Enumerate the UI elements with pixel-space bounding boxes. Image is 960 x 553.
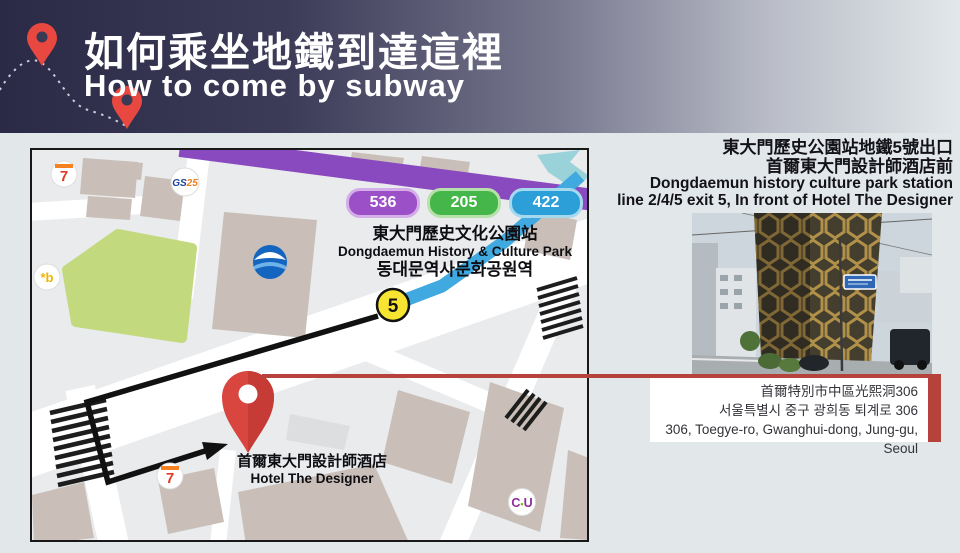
infographic-page: 如何乘坐地鐵到達這裡 How to come by subway 東大門歷史公園…: [0, 0, 960, 553]
address-accent-bar: [928, 374, 941, 442]
directions-line-zh-1: 東大門歷史公園站地鐵5號出口: [575, 138, 953, 157]
kb-logo: *b: [34, 264, 60, 290]
hotel-name-zh: 首爾東大門設計師酒店: [212, 453, 412, 471]
address-en: 306, Toegye-ro, Gwanghui-dong, Jung-gu, …: [650, 420, 918, 458]
photo-building-right-2: [900, 257, 932, 293]
page-title-english: How to come by subway: [84, 68, 465, 104]
address-ko: 서울특별시 중구 광희동 퇴계로 306: [650, 401, 918, 420]
hotel-photo: [692, 213, 932, 376]
photo-tree: [740, 331, 760, 351]
station-name-zh: 東大門歷史文化公園站: [324, 224, 586, 244]
photo-motorbike: [799, 355, 829, 371]
seven-eleven-logo: 7: [51, 161, 77, 187]
exit-5-marker: 5: [377, 289, 409, 321]
photo-hotel-building: [754, 213, 882, 376]
photo-street-sign: [844, 275, 876, 289]
station-label-block: 東大門歷史文化公園站 Dongdaemun History & Culture …: [324, 224, 586, 280]
photo-van: [890, 329, 930, 370]
bus-badge-205: 205: [427, 188, 501, 218]
station-name-en: Dongdaemun History & Culture Park: [324, 244, 586, 259]
map-pin-icon: [27, 23, 57, 66]
bank-logo: [253, 245, 287, 279]
photo-bush: [779, 358, 801, 372]
directions-line-en-1: Dongdaemun history culture park station: [575, 176, 953, 193]
seven-eleven-logo: 7: [157, 463, 183, 489]
photo-bush: [758, 353, 782, 369]
subway-map: 7 GS25 *b 7 C•U: [30, 148, 589, 542]
svg-text:5: 5: [388, 296, 399, 317]
bus-badge-422: 422: [509, 188, 583, 218]
svg-text:GS25: GS25: [172, 178, 198, 189]
svg-text:7: 7: [166, 470, 174, 487]
station-name-ko: 동대문역사문화공원역: [324, 259, 586, 280]
pin-leader-line: [262, 374, 941, 378]
header-band: 如何乘坐地鐵到達這裡 How to come by subway: [0, 0, 960, 133]
cu-logo: C•U: [509, 489, 536, 516]
svg-text:*b: *b: [41, 270, 54, 285]
address-block: 首爾特別市中區光熙洞306 서울특별시 중구 광희동 퇴계로 306 306, …: [650, 378, 928, 442]
directions-text-block: 東大門歷史公園站地鐵5號出口 首爾東大門設計師酒店前 Dongdaemun hi…: [575, 138, 953, 209]
address-zh: 首爾特別市中區光熙洞306: [650, 382, 918, 401]
hotel-name-en: Hotel The Designer: [212, 471, 412, 486]
bus-badge-536: 536: [346, 188, 420, 218]
directions-line-zh-2: 首爾東大門設計師酒店前: [575, 157, 953, 176]
directions-line-en-2: line 2/4/5 exit 5, In front of Hotel The…: [575, 193, 953, 210]
hotel-label-block: 首爾東大門設計師酒店 Hotel The Designer: [212, 453, 412, 486]
svg-text:C•U: C•U: [511, 496, 532, 510]
svg-text:7: 7: [60, 168, 68, 185]
gs25-logo: GS25: [171, 168, 199, 196]
